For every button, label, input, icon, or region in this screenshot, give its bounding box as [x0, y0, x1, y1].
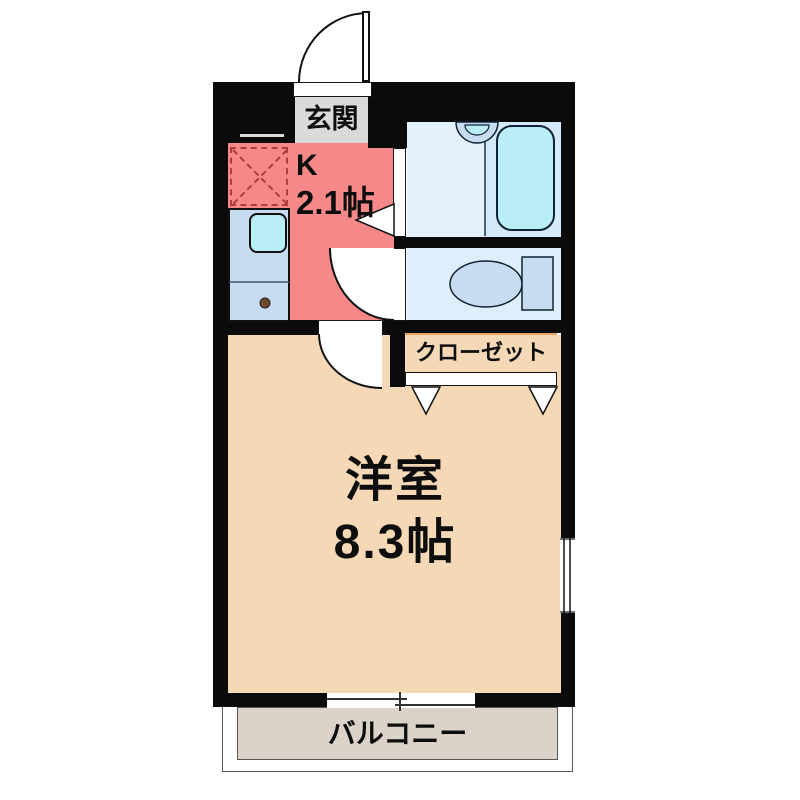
- entrance-door-leaf-icon: [362, 11, 370, 82]
- wall-top-right: [368, 82, 407, 148]
- wall-marking: [240, 134, 284, 137]
- closet-door-opening: [405, 372, 557, 386]
- wall-kitchen-bottom-left: [228, 320, 318, 335]
- toilet-room: [407, 248, 561, 320]
- wall-left: [213, 82, 228, 707]
- wall-closet-left: [390, 333, 405, 387]
- floor-plan: 玄関 K 2.1帖 洋室 8.3帖 クローゼット バルコニー: [0, 0, 800, 800]
- wall-bottom-left: [213, 693, 327, 707]
- balcony-label: バルコニー: [237, 707, 558, 760]
- kitchen-label: K 2.1帖: [296, 147, 426, 221]
- kitchen-type-label: K: [296, 147, 426, 184]
- entrance-label: 玄関: [295, 95, 368, 143]
- refrigerator-space-icon: [230, 147, 288, 206]
- kitchen-size-label: 2.1帖: [296, 184, 426, 221]
- wall-toilet-bottom: [390, 320, 575, 333]
- window-icon: [560, 538, 575, 613]
- room-door-opening: [318, 320, 383, 335]
- western-room-size: 8.3帖: [270, 512, 520, 574]
- wall-above-bathroom: [407, 82, 575, 122]
- bathroom-tub-area: [485, 122, 561, 237]
- kitchen-sink-icon: [249, 213, 287, 253]
- western-room-label: 洋室 8.3帖: [270, 450, 520, 574]
- wall-bath-toilet-divider: [394, 237, 575, 248]
- wall-bottom-right: [475, 693, 575, 707]
- entrance-door-arc-icon: [298, 12, 368, 82]
- toilet-door-leaf: [393, 248, 406, 321]
- closet-label: クローゼット: [405, 333, 557, 372]
- western-room-name: 洋室: [270, 450, 520, 512]
